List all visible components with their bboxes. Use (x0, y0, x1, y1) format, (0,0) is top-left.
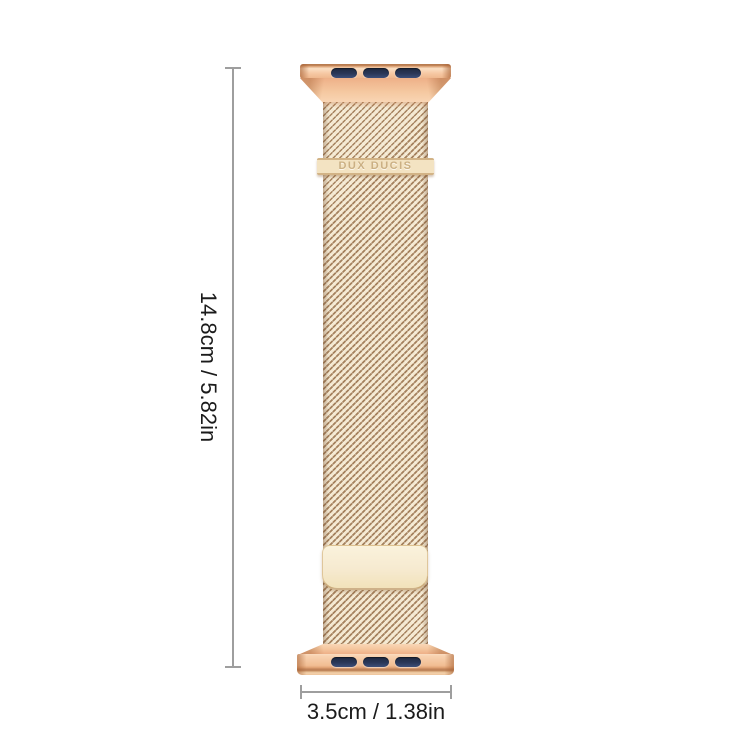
product-image: DUX DUCIS 14.8cm / 5.82in 3.5cm / 1.38in (0, 0, 750, 750)
connector-slot-icon (395, 68, 421, 78)
width-dimension-line (301, 691, 451, 693)
connector-slot-icon (363, 68, 389, 78)
brand-keeper: DUX DUCIS (317, 158, 434, 175)
width-dimension-label: 3.5cm / 1.38in (307, 701, 445, 723)
top-connector-bar (300, 64, 451, 79)
top-connector-taper (300, 78, 451, 103)
connector-slot-icon (363, 657, 389, 667)
height-dimension-tick-top (225, 67, 241, 69)
width-dimension-tick-right (450, 685, 452, 699)
height-dimension-line (232, 68, 234, 668)
bottom-connector-bar (297, 654, 454, 675)
connector-slot-icon (331, 68, 357, 78)
connector-slot-icon (331, 657, 357, 667)
width-dimension-tick-left (300, 685, 302, 699)
magnetic-clasp-plate (322, 545, 428, 590)
height-dimension-label: 14.8cm / 5.82in (197, 292, 219, 442)
height-dimension-tick-bottom (225, 666, 241, 668)
connector-slot-icon (395, 657, 421, 667)
brand-label: DUX DUCIS (338, 161, 412, 172)
mesh-strap: DUX DUCIS (323, 102, 428, 644)
bottom-connector-taper (300, 644, 451, 654)
